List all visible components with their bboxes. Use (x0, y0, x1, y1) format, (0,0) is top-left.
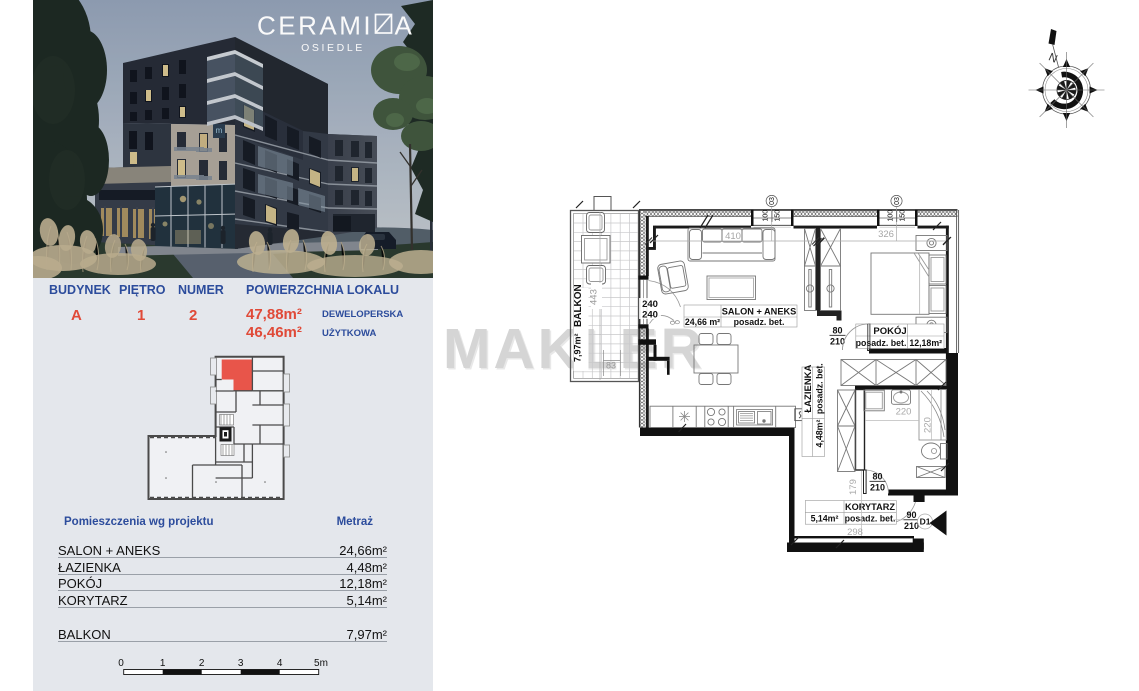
svg-text:0: 0 (118, 658, 124, 669)
svg-text:posadz. bet.: posadz. bet. (814, 363, 824, 414)
svg-text:03: 03 (894, 197, 901, 205)
svg-text:SALON + ANEKS: SALON + ANEKS (722, 307, 796, 317)
svg-text:24,66 m²: 24,66 m² (685, 317, 720, 327)
svg-text:7,97m²: 7,97m² (573, 333, 583, 362)
svg-text:posadz. bet.: posadz. bet. (856, 338, 907, 348)
svg-text:D1: D1 (920, 517, 931, 527)
svg-text:90: 90 (906, 510, 916, 520)
svg-text:posadz. bet.: posadz. bet. (734, 317, 785, 327)
svg-text:posadz. bet.: posadz. bet. (845, 514, 896, 524)
svg-text:240: 240 (642, 310, 658, 321)
svg-text:OSIEDLE: OSIEDLE (301, 42, 365, 54)
svg-text:150: 150 (899, 210, 906, 222)
svg-text:150: 150 (775, 210, 782, 222)
svg-text:KORYTARZ: KORYTARZ (845, 502, 895, 512)
svg-text:100: 100 (887, 210, 894, 222)
svg-text:A: A (395, 11, 415, 41)
svg-text:443: 443 (589, 289, 600, 305)
svg-text:210: 210 (870, 483, 885, 493)
svg-text:240: 240 (642, 299, 658, 310)
svg-text:12,18m²: 12,18m² (909, 338, 942, 348)
svg-text:220: 220 (923, 417, 934, 433)
svg-text:CERAMI: CERAMI (257, 11, 373, 41)
svg-text:100: 100 (763, 210, 770, 222)
svg-text:220: 220 (896, 407, 912, 418)
svg-text:4: 4 (277, 658, 283, 669)
svg-text:4,48m²: 4,48m² (814, 419, 824, 447)
svg-text:5,14m²: 5,14m² (811, 514, 839, 524)
svg-text:5m: 5m (314, 658, 328, 669)
svg-text:BALKON: BALKON (573, 284, 584, 327)
svg-text:3: 3 (238, 658, 244, 669)
svg-text:POKÓJ: POKÓJ (873, 325, 906, 337)
svg-text:1: 1 (160, 658, 166, 669)
svg-text:ŁAZIENKA: ŁAZIENKA (803, 364, 814, 412)
svg-text:326: 326 (878, 229, 894, 240)
svg-text:410: 410 (725, 231, 741, 242)
svg-text:83: 83 (606, 361, 616, 371)
svg-text:80: 80 (872, 472, 882, 482)
svg-text:N: N (1047, 51, 1059, 65)
svg-text:179: 179 (848, 479, 859, 495)
svg-text:80: 80 (832, 326, 842, 336)
svg-text:210: 210 (904, 521, 919, 531)
svg-text:2: 2 (199, 658, 205, 669)
svg-text:298: 298 (847, 527, 863, 538)
svg-text:03: 03 (769, 197, 776, 205)
